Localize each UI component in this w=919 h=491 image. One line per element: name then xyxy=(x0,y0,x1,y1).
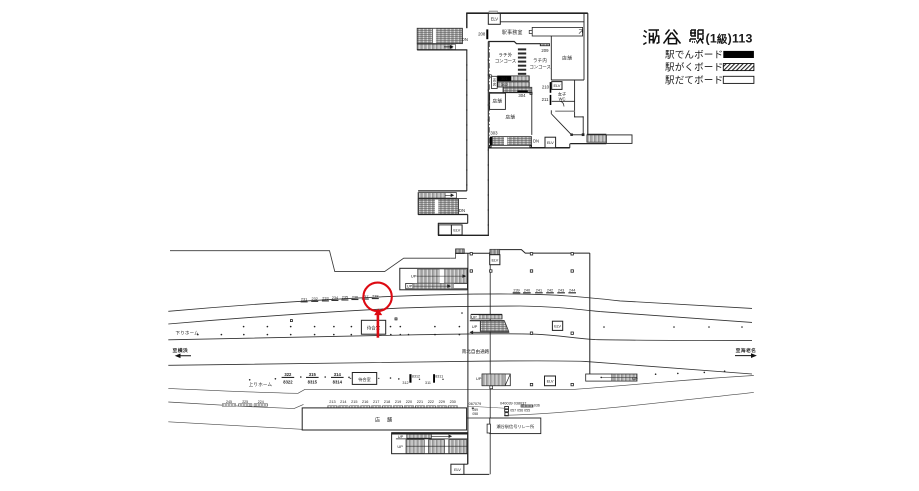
svg-text:南北自由通路: 南北自由通路 xyxy=(462,348,490,355)
svg-text:240: 240 xyxy=(524,288,530,292)
svg-text:067079: 067079 xyxy=(469,402,482,406)
svg-text:241: 241 xyxy=(536,288,542,292)
svg-text:209: 209 xyxy=(541,48,549,53)
svg-text:229: 229 xyxy=(439,400,445,404)
svg-text:238: 238 xyxy=(372,294,378,298)
svg-text:304: 304 xyxy=(518,93,526,98)
svg-text:219: 219 xyxy=(395,400,401,404)
svg-text:UP: UP xyxy=(407,285,413,289)
svg-text:至横浜: 至横浜 xyxy=(173,347,189,354)
svg-text:312: 312 xyxy=(402,381,408,385)
svg-text:上りホーム: 上りホーム xyxy=(249,381,273,388)
svg-text:058: 058 xyxy=(472,412,478,416)
svg-text:8314: 8314 xyxy=(333,380,343,385)
svg-text:235: 235 xyxy=(342,296,348,300)
svg-text:230: 230 xyxy=(450,400,456,404)
svg-text:待合室: 待合室 xyxy=(358,376,371,383)
svg-text:ELV: ELV xyxy=(554,323,561,328)
svg-text:322: 322 xyxy=(284,372,292,377)
svg-text:ELV: ELV xyxy=(454,467,461,472)
svg-text:UP: UP xyxy=(471,315,477,320)
svg-text:店 舗: 店 舗 xyxy=(375,417,393,424)
svg-text:駅でんボード: 駅でんボード xyxy=(665,50,723,61)
svg-text:ELV: ELV xyxy=(453,228,460,233)
svg-text:ELV: ELV xyxy=(491,257,498,262)
svg-text:232: 232 xyxy=(312,297,318,301)
svg-text:222: 222 xyxy=(428,400,434,404)
svg-text:215: 215 xyxy=(351,400,357,404)
svg-text:234: 234 xyxy=(332,296,338,300)
svg-text:233: 233 xyxy=(322,297,328,301)
svg-text:ELV: ELV xyxy=(547,378,554,383)
svg-text:UP: UP xyxy=(472,324,478,329)
svg-text:211: 211 xyxy=(542,97,549,102)
svg-text:ELV: ELV xyxy=(547,140,554,145)
svg-text:220: 220 xyxy=(406,400,412,404)
svg-text:221: 221 xyxy=(417,400,423,404)
svg-text:コンコース: コンコース xyxy=(495,58,517,63)
svg-text:315: 315 xyxy=(309,372,317,377)
svg-text:UP: UP xyxy=(397,444,403,449)
svg-text:8322: 8322 xyxy=(283,380,293,385)
svg-text:ELV: ELV xyxy=(554,83,561,88)
svg-text:DN: DN xyxy=(459,208,465,213)
svg-text:239: 239 xyxy=(513,288,519,292)
svg-text:236: 236 xyxy=(352,295,358,299)
svg-text:303: 303 xyxy=(490,131,498,136)
svg-text:UP: UP xyxy=(411,273,417,278)
svg-text:314: 314 xyxy=(334,372,342,377)
svg-text:DN: DN xyxy=(462,37,468,42)
svg-text:8315: 8315 xyxy=(308,380,318,385)
svg-text:243: 243 xyxy=(558,288,564,292)
svg-text:DN: DN xyxy=(533,139,539,144)
svg-text:036: 036 xyxy=(534,403,540,407)
svg-text:231: 231 xyxy=(301,298,307,302)
svg-text:UP: UP xyxy=(398,434,404,439)
svg-text:ELV: ELV xyxy=(491,16,498,21)
svg-text:218: 218 xyxy=(384,400,390,404)
svg-text:245: 245 xyxy=(226,400,232,404)
svg-text:店舗: 店舗 xyxy=(562,55,572,62)
svg-text:駅だてボード: 駅だてボード xyxy=(665,75,723,86)
svg-text:301: 301 xyxy=(501,76,508,81)
svg-text:057 056 055: 057 056 055 xyxy=(510,408,530,412)
svg-text:店舗: 店舗 xyxy=(493,98,503,105)
svg-text:WC: WC xyxy=(559,96,566,101)
svg-text:UP: UP xyxy=(476,376,482,381)
svg-text:店舗: 店舗 xyxy=(506,113,516,120)
svg-text:224: 224 xyxy=(258,400,264,404)
svg-text:210: 210 xyxy=(542,85,550,90)
svg-text:242: 242 xyxy=(547,288,553,292)
svg-text:ラチ内: ラチ内 xyxy=(533,57,547,64)
svg-text:213: 213 xyxy=(329,400,335,404)
svg-text:駅事務室: 駅事務室 xyxy=(502,29,523,36)
svg-text:311: 311 xyxy=(425,381,431,385)
svg-text:至海老名: 至海老名 xyxy=(736,347,757,354)
svg-text:UP: UP xyxy=(632,376,638,381)
svg-text:8312: 8312 xyxy=(412,375,420,379)
svg-text:216: 216 xyxy=(362,400,368,404)
svg-text:244: 244 xyxy=(569,288,575,292)
svg-text:駅がくボード: 駅がくボード xyxy=(665,62,723,74)
svg-text:302: 302 xyxy=(501,82,508,87)
svg-text:瀬谷駅信号リレー所: 瀬谷駅信号リレー所 xyxy=(496,423,534,430)
svg-text:(1級)113: (1級)113 xyxy=(706,31,753,45)
svg-text:8311: 8311 xyxy=(435,375,443,379)
svg-text:225: 225 xyxy=(242,400,248,404)
svg-text:コンコース: コンコース xyxy=(529,64,551,69)
svg-text:208: 208 xyxy=(478,31,486,36)
svg-text:217: 217 xyxy=(373,400,379,404)
svg-text:214: 214 xyxy=(340,400,346,404)
